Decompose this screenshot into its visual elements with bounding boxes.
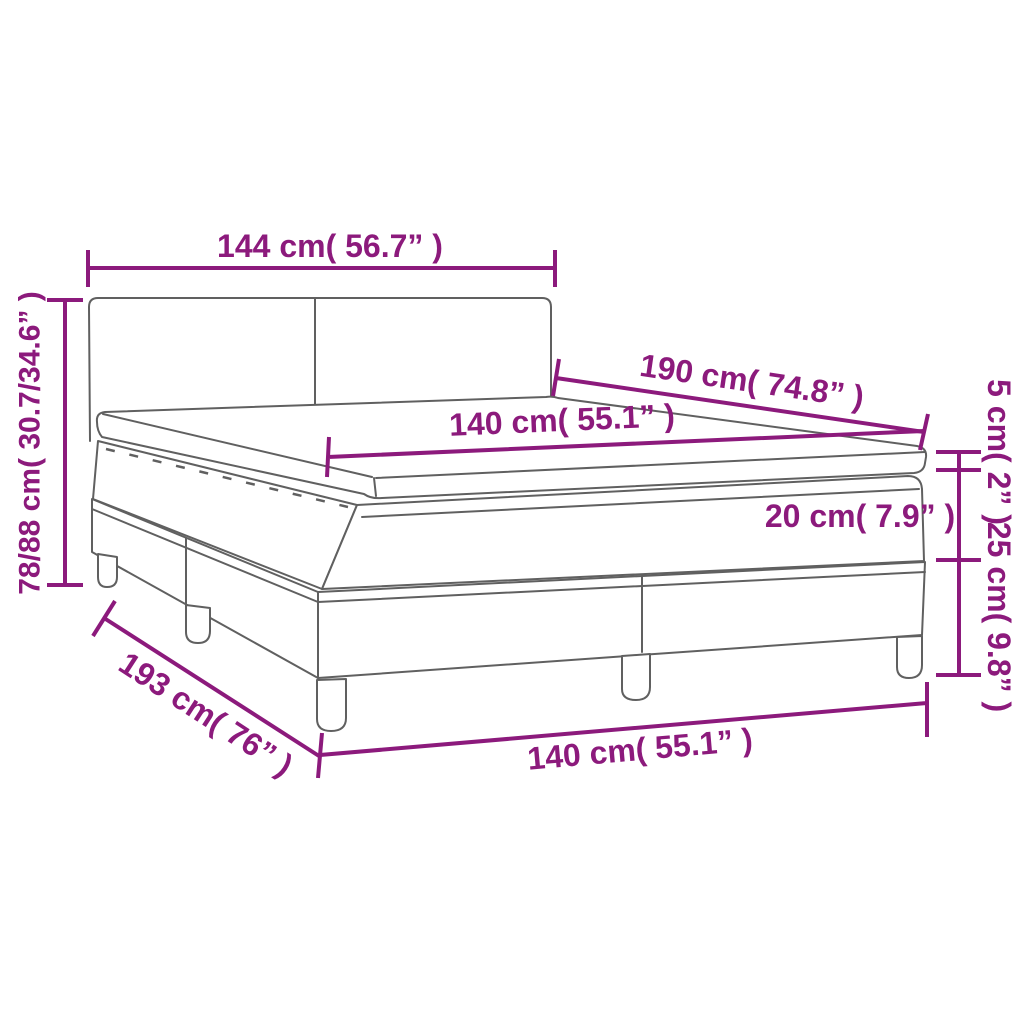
bed-leg-foot-right <box>897 636 922 678</box>
dim-total-height: 78/88 cm( 30.7/34.6” ) <box>14 291 84 595</box>
dim-mattress-width-bottom: 140 cm( 55.1” ) <box>318 682 927 778</box>
dim-line <box>47 300 83 585</box>
dim-label-mattress-height: 20 cm( 7.9” ) <box>765 498 955 534</box>
dim-label-headboard-width: 144 cm( 56.7” ) <box>217 228 443 264</box>
bed-leg-mid-left <box>186 605 210 643</box>
dim-headboard-width: 144 cm( 56.7” ) <box>88 228 555 287</box>
bed-leg-front-corner <box>317 679 346 731</box>
dim-label-base-height: 25 cm( 9.8” ) <box>981 522 1017 712</box>
dim-label-topper-height: 5 cm( 2” ) <box>981 379 1017 525</box>
bed-dimension-diagram: 144 cm( 56.7” ) 78/88 cm( 30.7/34.6” ) 1… <box>0 0 1024 1024</box>
bed-leg-mid-foot <box>622 654 650 700</box>
dim-label-total-length: 193 cm( 76” ) <box>113 645 300 784</box>
bed-leg-head-left <box>98 554 117 587</box>
dim-line <box>936 452 981 675</box>
dim-label-total-height: 78/88 cm( 30.7/34.6” ) <box>14 291 47 595</box>
